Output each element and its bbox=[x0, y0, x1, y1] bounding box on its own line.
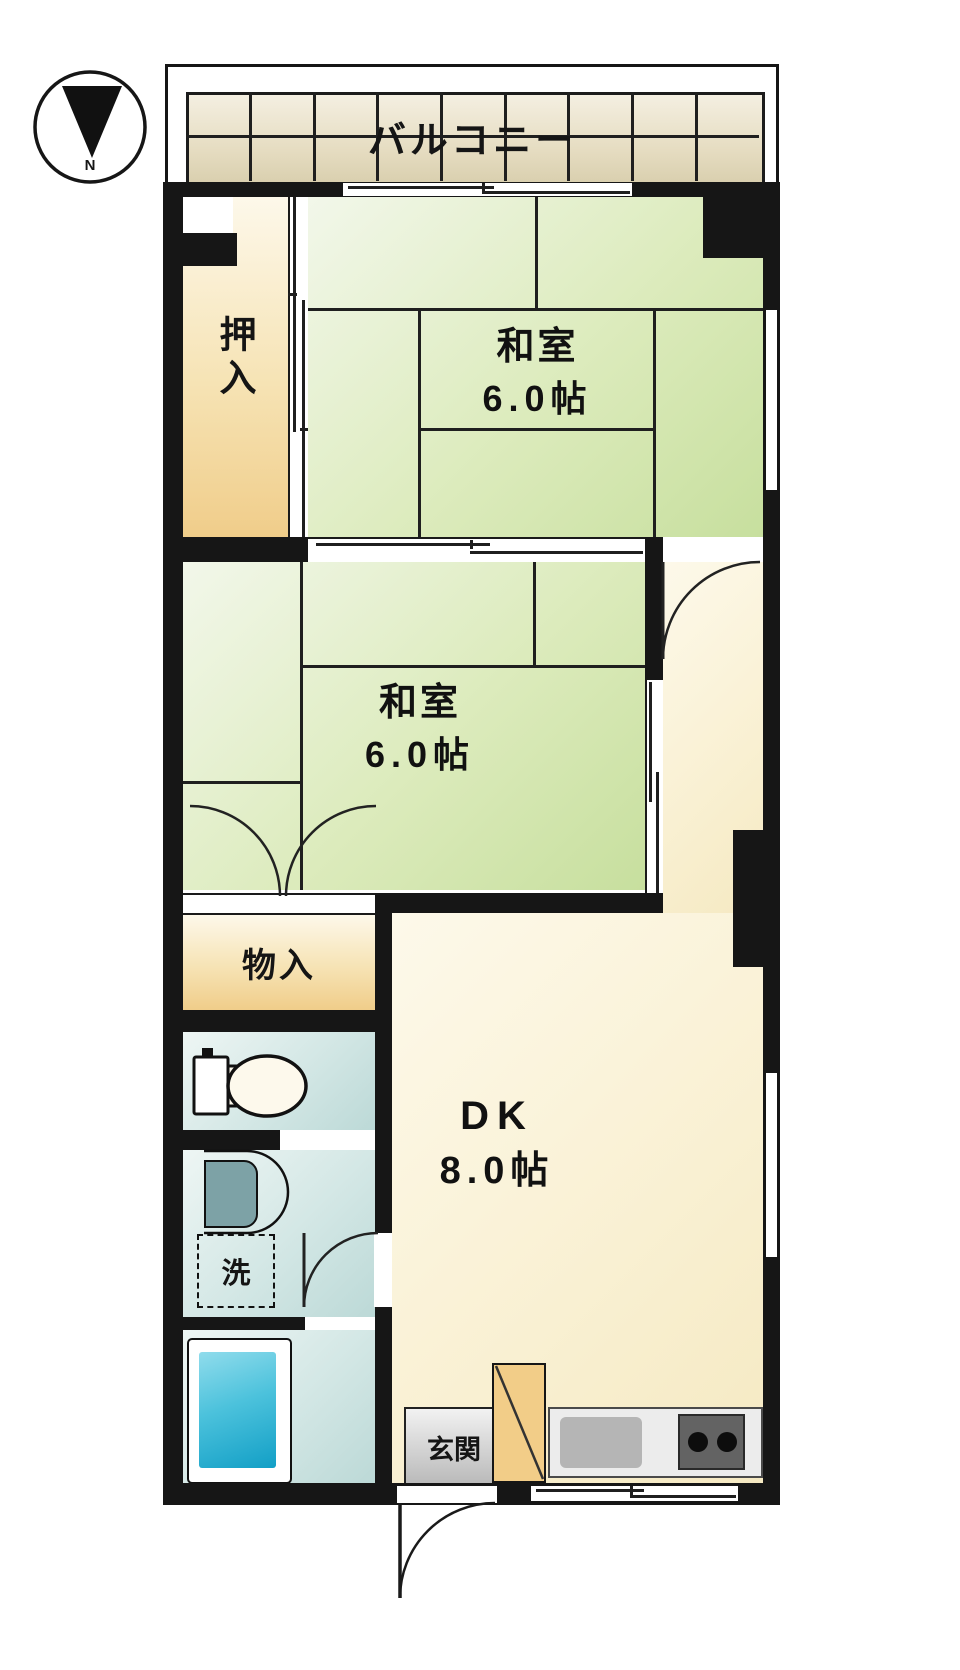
door-swing-arc bbox=[304, 1233, 378, 1307]
closet-label: 押入 bbox=[213, 293, 255, 423]
toilet-tank bbox=[194, 1057, 228, 1114]
entrance-door-swing-arc bbox=[400, 1503, 495, 1598]
door-swing-arc bbox=[663, 562, 760, 659]
tatami2-label: 和室 6.0帖 bbox=[295, 668, 545, 780]
tatami1-label: 和室 6.0帖 bbox=[420, 312, 655, 424]
dk-size: 8.0帖 bbox=[440, 1139, 555, 1194]
dk-name: DK bbox=[460, 1094, 534, 1139]
double-door-arc bbox=[286, 806, 376, 896]
tatami1-size: 6.0帖 bbox=[482, 370, 592, 422]
toilet-handle bbox=[202, 1048, 213, 1057]
washbasin-outline bbox=[204, 1151, 288, 1233]
double-door-arc bbox=[190, 806, 280, 896]
storage-label: 物入 bbox=[183, 938, 375, 986]
tatami2-size: 6.0帖 bbox=[365, 726, 475, 778]
compass-north-label: N bbox=[80, 156, 100, 174]
tatami2-name: 和室 bbox=[379, 671, 461, 726]
symbols-overlay bbox=[0, 0, 960, 1670]
toilet-bowl-icon bbox=[228, 1056, 306, 1116]
tatami1-name: 和室 bbox=[496, 315, 578, 370]
floor-plan: バルコニー 洗 bbox=[0, 0, 960, 1670]
shoe-cabinet-diagonal bbox=[496, 1366, 543, 1479]
dk-label: DK 8.0帖 bbox=[392, 1088, 602, 1200]
